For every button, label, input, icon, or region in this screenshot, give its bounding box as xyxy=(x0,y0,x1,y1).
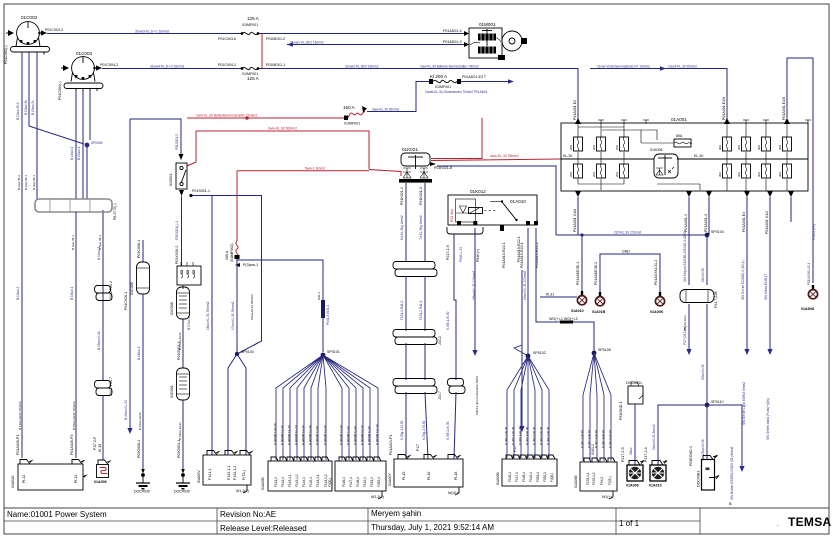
svg-text:K.30c.5-Kl.30: K.30c.5-Kl.30 xyxy=(608,430,612,448)
svg-text:K.40098.1-Kl.30: K.40098.1-Kl.30 xyxy=(273,423,277,445)
svg-text:K.40098.1k-30: K.40098.1k-30 xyxy=(360,425,364,445)
svg-text:P01A024-P1: P01A024-P1 xyxy=(389,435,393,455)
svg-text:PL12: PL12 xyxy=(22,475,26,483)
svg-text:01G001: 01G001 xyxy=(170,385,174,398)
svg-text:F141,1: F141,1 xyxy=(208,469,212,480)
svg-text:DOC#030: DOC#030 xyxy=(134,490,150,494)
svg-text:F(Q0,): F(Q0,) xyxy=(550,473,554,482)
svg-text:P01A026-P3: P01A026-P3 xyxy=(70,435,74,455)
svg-text:F94,2: F94,2 xyxy=(600,477,604,485)
svg-text:P01A001 E2: P01A001 E2 xyxy=(573,100,577,120)
svg-text:26sw: 26sw xyxy=(629,447,633,455)
svg-text:TEMSA: TEMSA xyxy=(788,515,832,529)
svg-text:F148,1: F148,1 xyxy=(356,477,360,487)
svg-text:B 15sw-KL31 70mm2: B 15sw-KL31 70mm2 xyxy=(72,401,76,430)
svg-text:F052,1: F052,1 xyxy=(377,477,381,487)
svg-text:Release Level:Released: Release Level:Released xyxy=(220,524,307,533)
svg-text:01A00V: 01A00V xyxy=(197,470,201,483)
svg-text:K.40098.1m-30: K.40098.1m-30 xyxy=(375,424,379,445)
svg-text:F141,1: F141,1 xyxy=(274,477,278,487)
svg-text:B 16sw-1: B 16sw-1 xyxy=(137,346,141,360)
svg-text:K.30f.2-Kl.30: K.30f.2-Kl.30 xyxy=(446,421,450,440)
svg-text:W(U)+: W(U)+ xyxy=(448,491,458,495)
svg-text:P217,2-9: P217,2-9 xyxy=(446,245,450,260)
svg-text:01A006: 01A006 xyxy=(94,480,107,484)
svg-text:K.30g.1-Kl.30: K.30g.1-Kl.30 xyxy=(400,420,404,440)
svg-text:F144,1: F144,1 xyxy=(302,477,306,487)
svg-text:80A: 80A xyxy=(676,134,683,138)
svg-text:01K008: 01K008 xyxy=(650,148,662,152)
svg-text:Name:01001 Power System: Name:01001 Power System xyxy=(7,510,107,519)
svg-text:DOC#031: DOC#031 xyxy=(626,381,642,385)
svg-text:K.30b.6-Kl.30: K.30b.6-Kl.30 xyxy=(539,426,543,445)
svg-text:K.30b.2-Kl.30: K.30b.2-Kl.30 xyxy=(511,426,515,445)
svg-text:SW 04 3pin Fahrerlicht 15/24: SW 04 3pin Fahrerlicht 15/24 xyxy=(475,376,479,415)
svg-text:W1,2(+): W1,2(+) xyxy=(371,495,384,499)
svg-text:P01MD01-2: P01MD01-2 xyxy=(266,37,285,41)
svg-text:K.40098.1j-30: K.40098.1j-30 xyxy=(353,426,357,445)
svg-text:30A: 30A xyxy=(757,172,761,177)
svg-text:Thursday, July 1, 2021 9:52:1: Thursday, July 1, 2021 9:52:14 AM xyxy=(371,523,494,532)
svg-text:1ww-KL.30 Batterie-trennschalt: 1ww-KL.30 Batterie-trennschalter 70mm2 xyxy=(420,65,479,69)
svg-text:SW Moped E1/GB1,2/31/10 3-AWG: SW Moped E1/GB1,2/31/10 3-AWG xyxy=(683,231,687,282)
svg-text:01K012: 01K012 xyxy=(470,189,486,194)
svg-text:K.40098.1i-30: K.40098.1i-30 xyxy=(346,426,350,445)
svg-text:Kl 200 A: Kl 200 A xyxy=(430,74,448,79)
svg-text:SP0104: SP0104 xyxy=(711,230,724,234)
svg-text:01A00K: 01A00K xyxy=(650,310,664,314)
svg-text:20A: 20A xyxy=(615,172,619,177)
svg-text:30A: 30A xyxy=(718,172,722,177)
svg-text:F133,1,1: F133,1,1 xyxy=(586,472,590,485)
svg-text:3ww-KL.30 25mm2: 3ww-KL.30 25mm2 xyxy=(372,108,400,112)
svg-text:1ww3-KL.30 25mm2: 1ww3-KL.30 25mm2 xyxy=(668,65,697,69)
svg-text:K.30b.1-Kl.30: K.30b.1-Kl.30 xyxy=(504,426,508,445)
svg-text:Kl.31: Kl.31 xyxy=(546,293,554,297)
svg-text:F146,1: F146,1 xyxy=(342,477,346,487)
svg-text:P01C003-2: P01C003-2 xyxy=(45,28,63,32)
svg-text:F147,1: F147,1 xyxy=(515,472,519,482)
svg-text:01K021: 01K021 xyxy=(402,147,418,152)
svg-text:01A01B: 01A01B xyxy=(592,310,606,314)
svg-text:P01MD01-1: P01MD01-1 xyxy=(266,63,285,67)
svg-text:K.30c.4-Kl.30: K.30c.4-Kl.30 xyxy=(601,430,605,448)
svg-text:F148,1: F148,1 xyxy=(522,472,526,482)
svg-text:R22 4kd: R22 4kd xyxy=(450,209,454,222)
svg-text:P01C003(-): P01C003(-) xyxy=(4,45,8,64)
svg-text:B 17sw-1: B 17sw-1 xyxy=(187,316,191,330)
svg-text:F142,1: F142,1 xyxy=(281,477,285,487)
svg-text:K.40098.1f-30: K.40098.1f-30 xyxy=(315,426,319,445)
svg-text:Kl.15: Kl.15 xyxy=(98,444,102,452)
svg-text:B 13sw-KL31 70mm2: B 13sw-KL31 70mm2 xyxy=(18,401,22,430)
svg-text:B 15sw-Kl.31: B 15sw-Kl.31 xyxy=(97,331,101,350)
svg-text:P217,2-6: P217,2-6 xyxy=(644,447,648,462)
svg-text:01S001: 01S001 xyxy=(169,174,173,186)
svg-text:K.40098.1c-30: K.40098.1c-30 xyxy=(294,425,298,445)
svg-text:01C004: 01C004 xyxy=(76,51,93,56)
svg-text:P01C008-1: P01C008-1 xyxy=(137,240,141,258)
svg-text:P01A001-1: P01A001-1 xyxy=(684,214,688,232)
svg-text:W1(+): W1(+) xyxy=(602,495,612,499)
svg-text:20A: 20A xyxy=(569,172,573,177)
svg-text:K30-1: K30-1 xyxy=(317,292,321,300)
svg-text:6rt-KL.30g 4mm2: 6rt-KL.30g 4mm2 xyxy=(400,215,404,240)
svg-text:01C003: 01C003 xyxy=(21,15,38,20)
svg-text:K.30c.3-Kl.30: K.30c.3-Kl.30 xyxy=(594,430,598,448)
svg-text:P01C003-6: P01C003-6 xyxy=(218,37,236,41)
svg-text:SW Boden E3/GB3,2/31/9 (01) 6m: SW Boden E3/GB3,2/31/9 (01) 6mm2 xyxy=(730,446,734,500)
svg-text:P01AXXKL31-1: P01AXXKL31-1 xyxy=(654,260,658,285)
svg-text:B 16sw-KL31: B 16sw-KL31 xyxy=(138,412,142,430)
svg-text:P01A001 E1/5: P01A001 E1/5 xyxy=(782,97,786,120)
svg-text:01A010: 01A010 xyxy=(649,484,662,488)
svg-text:P#41,3 W#1,4: P#41,3 W#1,4 xyxy=(326,305,330,325)
svg-text:F146,1: F146,1 xyxy=(508,472,512,482)
svg-text:21ww-Vorsicherungsdose-D+ 16mm: 21ww-Vorsicherungsdose-D+ 16mm2 xyxy=(597,65,650,69)
svg-text:19sw-KL.31 2,5mm2: 19sw-KL.31 2,5mm2 xyxy=(523,271,527,300)
svg-text:F(05,): F(05,) xyxy=(608,476,612,485)
svg-text:F051,1: F051,1 xyxy=(536,472,540,482)
svg-text:SP0110: SP0110 xyxy=(711,400,724,404)
svg-text:SP0101: SP0101 xyxy=(327,350,340,354)
svg-text:J34,2: J34,2 xyxy=(438,336,442,345)
svg-text:P01S001-1: P01S001-1 xyxy=(192,189,210,193)
svg-text:B 13sw-3b: B 13sw-3b xyxy=(24,100,28,115)
svg-text:K.40098.1e-30: K.40098.1e-30 xyxy=(308,425,312,445)
svg-text:SP0102: SP0102 xyxy=(533,351,546,355)
svg-text:PL16: PL16 xyxy=(427,472,431,480)
svg-text:1ww6-KL.30-Generatoren 70mm2 P: 1ww6-KL.30-Generatoren 70mm2 P01AD01 xyxy=(425,90,488,94)
svg-text:P1-03,1km: P1-03,1km xyxy=(683,315,687,330)
svg-text:P01AXXKL15-1: P01AXXKL15-1 xyxy=(807,262,811,285)
svg-text:01A009: 01A009 xyxy=(626,484,639,488)
svg-text:P01XX06-2: P01XX06-2 xyxy=(175,246,179,264)
svg-text:F051,1: F051,1 xyxy=(370,477,374,487)
svg-text:B 3sw 35-1: B 3sw 35-1 xyxy=(32,175,36,190)
svg-text:K.40098.1h-30: K.40098.1h-30 xyxy=(339,425,343,445)
svg-text:GND: GND xyxy=(622,250,630,254)
svg-text:F143,1,2: F143,1,2 xyxy=(295,474,299,487)
svg-text:15sw-KL31 35mm2: 15sw-KL31 35mm2 xyxy=(250,294,254,320)
svg-text:01A001: 01A001 xyxy=(671,117,687,122)
svg-text:16sw-KL.31 35mm2: 16sw-KL.31 35mm2 xyxy=(206,301,210,330)
svg-text:P04G001-1: P04G001-1 xyxy=(177,440,181,458)
svg-text:22rt-KL.30 2,5mm2: 22rt-KL.30 2,5mm2 xyxy=(614,231,642,235)
svg-text:P01C004-2: P01C004-2 xyxy=(100,63,118,67)
svg-text:B 13sw 35-1: B 13sw 35-1 xyxy=(16,102,20,120)
svg-text:20A: 20A xyxy=(592,145,596,150)
svg-text:31ww4-KL.D+-2 16mm2: 31ww4-KL.D+-2 16mm2 xyxy=(150,65,185,69)
svg-text:F052,1: F052,1 xyxy=(543,472,547,482)
svg-text:01A010: 01A010 xyxy=(510,199,526,204)
svg-text:7rt-KL.30g 4mm2: 7rt-KL.30g 4mm2 xyxy=(419,215,423,240)
svg-text:P(3)ww-1: P(3)ww-1 xyxy=(243,263,258,267)
svg-text:22rt-Kl.30: 22rt-Kl.30 xyxy=(701,268,705,282)
svg-text:P01A001 X1/2: P01A001 X1/2 xyxy=(765,211,769,234)
svg-text:F(TA,): F(TA,) xyxy=(242,470,246,480)
svg-text:P01K021-3: P01K021-3 xyxy=(419,187,423,205)
svg-text:SP0100: SP0100 xyxy=(241,350,254,354)
svg-text:F147,1: F147,1 xyxy=(349,477,353,487)
svg-text:F131,2 Rd1,3: F131,2 Rd1,3 xyxy=(419,300,423,320)
svg-text:Revision No:AE: Revision No:AE xyxy=(220,510,276,519)
svg-text:K.30b.4-Kl.30: K.30b.4-Kl.30 xyxy=(525,426,529,445)
svg-text:J34,2 F34,2: J34,2 F34,2 xyxy=(109,281,113,300)
svg-text:P217,2-5: P217,2-5 xyxy=(621,447,625,462)
svg-text:P01A010-R22-1: P01A010-R22-1 xyxy=(502,242,506,268)
svg-text:K.30g.2-Kl.30: K.30g.2-Kl.30 xyxy=(422,420,426,440)
svg-text:P64K(+): P64K(+) xyxy=(476,249,480,262)
svg-text:P51EGND-1: P51EGND-1 xyxy=(689,446,693,466)
svg-text:SW Decke E2/GB2,4 (D2,2): SW Decke E2/GB2,4 (D2,2) xyxy=(741,260,745,300)
svg-text:K.30f.1-Kl.30: K.30f.1-Kl.30 xyxy=(446,311,450,330)
svg-text:K.30c.2-Kl.30: K.30c.2-Kl.30 xyxy=(587,430,591,448)
svg-text:F133,1,1: F133,1,1 xyxy=(227,466,231,480)
svg-text:P01AD01-E3 T: P01AD01-E3 T xyxy=(462,75,487,79)
svg-text:P64K-L 23: P64K-L 23 xyxy=(459,247,463,262)
svg-text:F01,7,2-M: F01,7,2-M xyxy=(714,292,718,308)
svg-text:5ww-1 6mm2: 5ww-1 6mm2 xyxy=(305,167,325,171)
svg-text:J34,7 F34,7: J34,7 F34,7 xyxy=(109,377,113,396)
svg-text:01A00B: 01A00B xyxy=(261,477,265,490)
svg-text:F149,1: F149,1 xyxy=(363,477,367,487)
svg-text:F145,1: F145,1 xyxy=(309,477,313,487)
svg-text:B 5sw 35-1: B 5sw 35-1 xyxy=(98,235,102,250)
svg-text:B 4sw 35-1: B 4sw 35-1 xyxy=(71,235,75,250)
svg-text:B 13sw-3c: B 13sw-3c xyxy=(31,100,35,115)
svg-text:P01K021-8: P01K021-8 xyxy=(434,166,452,170)
svg-text:P01S001(-)-1: P01S001(-)-1 xyxy=(175,221,179,240)
svg-text:01IMF001: 01IMF001 xyxy=(242,23,258,27)
svg-text:17sw-KL.31 35mm2: 17sw-KL.31 35mm2 xyxy=(231,301,235,330)
svg-text:P01AD01-4: P01AD01-4 xyxy=(443,29,462,33)
svg-text:P01A001-3: P01A001-3 xyxy=(704,214,708,232)
svg-text:01IMF001: 01IMF001 xyxy=(435,85,451,89)
svg-text:SW Klima E1/B,17: SW Klima E1/B,17 xyxy=(764,274,768,300)
svg-text:24sw-Kl.31 6mm2: 24sw-Kl.31 6mm2 xyxy=(652,424,656,450)
svg-text:30A: 30A xyxy=(757,145,761,150)
svg-text:F131,1 Rd1,2: F131,1 Rd1,2 xyxy=(400,300,404,320)
svg-text:31ww3-KL.D+-1 16mm2: 31ww3-KL.D+-1 16mm2 xyxy=(135,30,170,34)
svg-text:P01A001 E4: P01A001 E4 xyxy=(742,212,746,232)
svg-text:F149,1: F149,1 xyxy=(529,472,533,482)
svg-text:P01A0KE3E-1: P01A0KE3E-1 xyxy=(576,262,580,285)
svg-text:F(Q0,): F(Q0,) xyxy=(328,478,332,487)
svg-text:2ww-KL.30 50mm2: 2ww-KL.30 50mm2 xyxy=(268,127,297,131)
svg-text:K.30b.7-Kl.30: K.30b.7-Kl.30 xyxy=(546,426,550,445)
svg-text:W1,2(+): W1,2(+) xyxy=(236,489,249,493)
svg-text:SW Seiten band (Funk)+(Qw): SW Seiten band (Funk)+(Qw) xyxy=(766,398,770,440)
svg-text:01A026: 01A026 xyxy=(11,476,15,488)
svg-text:K.40098.1a-30: K.40098.1a-30 xyxy=(280,425,284,445)
svg-text:20A: 20A xyxy=(569,145,573,150)
svg-text:01G008: 01G008 xyxy=(170,302,174,315)
svg-text:01M001: 01M001 xyxy=(479,22,496,27)
svg-text:01IMF001: 01IMF001 xyxy=(344,122,360,126)
svg-text:F133,1,2: F133,1,2 xyxy=(233,466,237,480)
svg-text:31ww1-KL.30/1 16mm2: 31ww1-KL.30/1 16mm2 xyxy=(290,41,324,45)
svg-text:150 A: 150 A xyxy=(343,105,356,110)
svg-text:B 17sw-KL31: B 17sw-KL31 xyxy=(178,332,182,350)
svg-text:01AD08: 01AD08 xyxy=(801,307,814,311)
svg-text:P01A001 X1/6: P01A001 X1/6 xyxy=(573,209,577,232)
svg-text:F143,1,1: F143,1,1 xyxy=(288,474,292,487)
svg-text:P01S001-2: P01S001-2 xyxy=(175,134,179,150)
svg-text:P01C026-1: P01C026-1 xyxy=(124,292,128,310)
svg-text:B 13sw-2: B 13sw-2 xyxy=(16,286,20,300)
svg-text:30A: 30A xyxy=(778,172,782,177)
svg-text:125 A: 125 A xyxy=(247,76,260,81)
svg-text:30A: 30A xyxy=(778,145,782,150)
svg-text:B 43sw-KL.31: B 43sw-KL.31 xyxy=(124,400,128,420)
svg-text:PL18: PL18 xyxy=(454,472,458,480)
svg-text:31ww2-KL.30/2 16mm2: 31ww2-KL.30/2 16mm2 xyxy=(345,65,379,69)
svg-text:K.40098.1b-30: K.40098.1b-30 xyxy=(287,425,291,445)
svg-text:4ww-KL.30 25mm2: 4ww-KL.30 25mm2 xyxy=(490,154,519,158)
svg-text:SP0108: SP0108 xyxy=(598,348,611,352)
svg-text:K.30b.3-Kl.30: K.30b.3-Kl.30 xyxy=(518,426,522,445)
svg-text:30A: 30A xyxy=(737,172,741,177)
svg-text:KL.30: KL.30 xyxy=(694,154,703,158)
svg-text:P01A010-R22-1: P01A010-R22-1 xyxy=(517,236,521,262)
svg-text:30A: 30A xyxy=(718,145,722,150)
svg-text:100 A: 100 A xyxy=(225,250,229,260)
svg-text:P01K021-1: P01K021-1 xyxy=(400,187,404,205)
svg-text:DOC#030: DOC#030 xyxy=(174,490,190,494)
svg-text:DOC#0B1: DOC#0B1 xyxy=(697,471,701,487)
svg-text:P04G008-2: P04G008-2 xyxy=(137,440,141,458)
svg-text:F133,1,2: F133,1,2 xyxy=(592,472,596,485)
svg-text:P01C004(-): P01C004(-) xyxy=(58,81,62,100)
svg-text:20A: 20A xyxy=(592,172,596,177)
svg-text:23sw-Kl.31: 23sw-Kl.31 xyxy=(701,364,705,380)
svg-text:P51IGND-1: P51IGND-1 xyxy=(619,401,623,420)
svg-text:B 14sw-2: B 14sw-2 xyxy=(70,146,74,160)
svg-text:P01AD01-3: P01AD01-3 xyxy=(443,40,462,44)
svg-text:18sw-KL.31 2,5mm2: 18sw-KL.31 2,5mm2 xyxy=(472,271,476,300)
svg-text:01A00B: 01A00B xyxy=(496,472,500,485)
svg-text:Meryem şahin: Meryem şahin xyxy=(371,509,421,518)
svg-text:B: B xyxy=(729,501,732,506)
svg-text:PA.37 D(-): PA.37 D(-) xyxy=(113,203,117,220)
svg-text:P01A0KE3E-2: P01A0KE3E-2 xyxy=(594,262,598,285)
svg-text:SP0005: SP0005 xyxy=(91,141,103,145)
svg-text:K.40098.1l-30: K.40098.1l-30 xyxy=(367,426,371,445)
svg-text:B 18sw-KL31: B 18sw-KL31 xyxy=(178,422,182,440)
svg-text:J34,7: J34,7 xyxy=(438,391,442,400)
svg-text:01A010: 01A010 xyxy=(571,309,584,313)
svg-text:P01A001 E1/6: P01A001 E1/6 xyxy=(722,97,726,120)
svg-text:B 2sw 35-1: B 2sw 35-1 xyxy=(24,175,28,190)
svg-text:PL15: PL15 xyxy=(402,472,406,480)
svg-text:SW Decke Light E5/B,5 6mm2: SW Decke Light E5/B,5 6mm2 xyxy=(742,382,746,425)
svg-text:KL.30: KL.30 xyxy=(563,154,572,158)
svg-text:(01IMF002): (01IMF002) xyxy=(230,243,234,262)
svg-text:P01A026-P1: P01A026-P1 xyxy=(16,435,20,455)
svg-text:WG(+)-1 WG(+)-2: WG(+)-1 WG(+)-2 xyxy=(549,317,578,321)
svg-text:P.07,2-F: P.07,2-F xyxy=(93,436,97,450)
svg-text:B 15sw-1: B 15sw-1 xyxy=(70,286,74,300)
svg-text:125 A: 125 A xyxy=(247,16,260,21)
svg-text:P01C004-2: P01C004-2 xyxy=(218,63,236,67)
svg-text:K.40098.1d-30: K.40098.1d-30 xyxy=(301,425,305,445)
svg-text:01A00B: 01A00B xyxy=(574,475,578,488)
svg-text:P,17: P,17 xyxy=(416,444,420,451)
svg-text:K.40098.1g-30: K.40098.1g-30 xyxy=(323,425,327,445)
svg-text:K.30b.5-Kl.30: K.30b.5-Kl.30 xyxy=(532,426,536,445)
svg-text:F143,1,1: F143,1,1 xyxy=(316,474,320,487)
svg-text:K.30c.1-Kl.30: K.30c.1-Kl.30 xyxy=(580,430,584,448)
svg-text:01A00Y: 01A00Y xyxy=(388,473,392,486)
svg-text:1ww-KL.30 Batterietrennschalte: 1ww-KL.30 Batterietrennschalter 70mm2 xyxy=(196,114,257,118)
svg-text:25sw-Kl.31: 25sw-Kl.31 xyxy=(701,439,705,455)
svg-text:30A: 30A xyxy=(737,145,741,150)
svg-text:B 14sw-1: B 14sw-1 xyxy=(77,146,81,160)
svg-text:B 1sw 35-1: B 1sw 35-1 xyxy=(17,175,21,190)
svg-text:PL13: PL13 xyxy=(74,475,78,483)
svg-text:20A: 20A xyxy=(615,145,619,150)
svg-text:01C008: 01C008 xyxy=(130,282,134,295)
svg-text:1 of 1: 1 of 1 xyxy=(619,519,640,528)
